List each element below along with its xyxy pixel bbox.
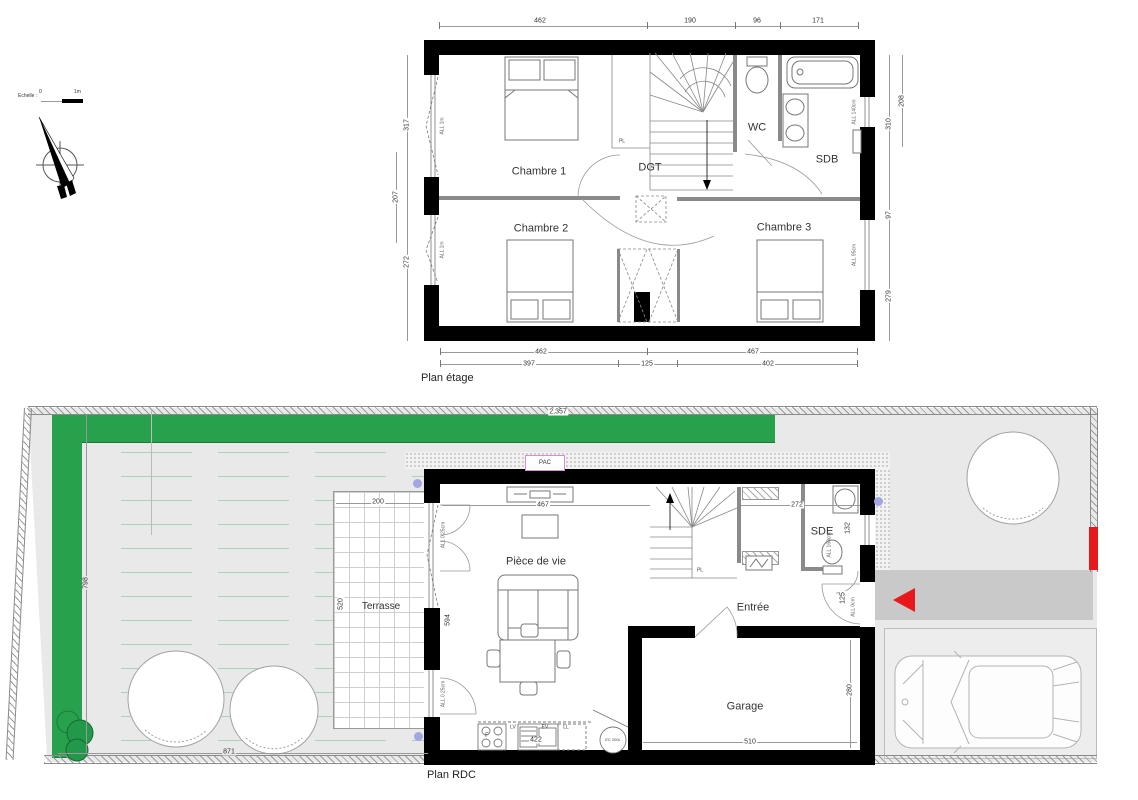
scale-one-meter: 1m — [74, 90, 81, 95]
dim-label: 279 — [886, 289, 893, 303]
wall-segment — [424, 177, 439, 215]
water-heater-label: EC 200L — [605, 738, 621, 742]
wall-segment — [860, 545, 875, 582]
dim-label: 125 — [640, 361, 654, 368]
window-label: ALL 0cm — [852, 597, 857, 617]
wall-segment — [860, 40, 875, 97]
dim-label: 96 — [752, 18, 762, 25]
marker-dot — [413, 479, 422, 488]
scale-bar-solid — [62, 99, 83, 103]
dim-label: 97 — [886, 210, 893, 220]
plan-rdc-title: Plan RDC — [427, 770, 476, 781]
dim-line — [440, 352, 857, 353]
bed-chambre2 — [507, 240, 573, 322]
dim-label: 871 — [222, 749, 236, 756]
wall-segment — [424, 608, 440, 670]
dim-line — [439, 26, 858, 27]
dim-label: 125 — [840, 591, 847, 605]
room-label-garage: Garage — [727, 702, 764, 713]
gravel-strip-top — [405, 452, 890, 469]
interior-wall — [439, 196, 620, 200]
wc-toilet — [746, 57, 768, 93]
garage-wall-top — [642, 626, 695, 638]
room-label-wc: WC — [748, 123, 766, 134]
garage-wall-left — [628, 626, 642, 765]
stair-wall — [737, 487, 741, 563]
hedge-left — [52, 415, 82, 758]
kitchen-label-ll: LL — [563, 726, 569, 731]
dim-label: 594 — [445, 613, 452, 627]
house-interior-rdc — [424, 469, 875, 765]
dim-label: 132 — [845, 521, 852, 535]
window-label: ALL 0.25cm — [442, 522, 447, 549]
room-label-chambre3: Chambre 3 — [757, 223, 811, 234]
wall-segment — [424, 750, 875, 765]
scale-label: Echelle : — [18, 94, 37, 99]
dim-label: 798 — [83, 576, 90, 590]
dim-line — [58, 753, 428, 754]
sde-wall — [801, 567, 836, 571]
room-label-living: Pièce de vie — [506, 557, 566, 568]
dim-label: 272 — [790, 502, 804, 509]
wall-segment — [424, 469, 440, 503]
north-compass-icon — [36, 117, 84, 199]
window-label: ALL 140cm — [853, 99, 858, 124]
closet-shelf — [742, 487, 779, 500]
wall-segment — [860, 469, 875, 515]
windows-etage — [426, 75, 869, 290]
dim-label: 171 — [811, 18, 825, 25]
bed-chambre1 — [505, 57, 578, 140]
sde-wall — [801, 484, 805, 571]
red-boundary-marker — [1089, 527, 1098, 570]
dim-label: 208 — [899, 94, 906, 108]
wall-segment — [424, 40, 439, 75]
heat-pump-box: PAC — [525, 455, 565, 471]
gravel-strip-right — [875, 469, 890, 570]
survey-line — [151, 410, 152, 535]
parking-space — [884, 628, 1097, 759]
window-label: ALL 95cm — [853, 244, 858, 266]
closet-shelf — [742, 551, 779, 565]
dim-label: 467 — [746, 349, 760, 356]
dim-label: 317 — [404, 118, 411, 132]
interior-wall — [677, 197, 860, 201]
sdb-bathtub — [787, 57, 858, 88]
dim-label: 520 — [338, 597, 345, 611]
dim-label: 310 — [886, 117, 893, 131]
floor-plan-sheet: Echelle : 0 1m PAC — [0, 0, 1138, 800]
wall-segment — [860, 290, 875, 341]
interior-wall — [778, 55, 782, 141]
window-label: ALL 1m — [441, 241, 446, 258]
dim-label: 422 — [529, 737, 543, 744]
dim-label: 207 — [393, 190, 400, 204]
interior-wall — [677, 249, 680, 322]
wall-segment — [424, 717, 440, 765]
kitchen-label-lv: LV — [510, 726, 516, 731]
entrance-arrow-icon — [893, 588, 915, 612]
kitchen-label-ev: EV — [542, 726, 549, 731]
scale-zero: 0 — [39, 90, 42, 95]
wall-segment — [424, 469, 875, 484]
plan-etage-title: Plan étage — [421, 373, 474, 384]
dim-label: 397 — [522, 361, 536, 368]
dim-label: 462 — [534, 349, 548, 356]
wall-segment — [424, 326, 875, 341]
dim-label: 402 — [761, 361, 775, 368]
dim-label: 510 — [743, 739, 757, 746]
window-label: ALL 160cm — [828, 532, 833, 557]
wall-segment — [860, 127, 875, 220]
dim-label: 2,357 — [548, 409, 568, 416]
interior-wall — [733, 55, 737, 152]
wall-segment — [424, 285, 439, 341]
room-label-sdb: SDB — [816, 155, 839, 166]
dim-label: 280 — [847, 683, 854, 697]
garage-wall-top — [737, 626, 860, 638]
room-label-entree: Entrée — [737, 603, 769, 614]
hedge-top — [58, 415, 775, 443]
sdb-double-basin — [783, 94, 861, 153]
closet-label-pl: PL — [619, 140, 625, 145]
dim-line — [407, 55, 408, 341]
marker-dot — [874, 497, 883, 506]
dim-label: 190 — [683, 18, 697, 25]
marker-dot — [414, 732, 423, 741]
scale-bar-line — [41, 101, 62, 102]
interior-wall — [617, 249, 620, 322]
bed-chambre3 — [757, 240, 823, 322]
room-label-dgt: DGT — [638, 163, 661, 174]
dim-label: 467 — [536, 502, 550, 509]
kitchen-label-f: F — [485, 733, 489, 739]
wall-segment — [424, 40, 875, 55]
dim-label: 200 — [371, 499, 385, 506]
closet-label-pl: PL — [697, 569, 703, 574]
window-label: ALL 1m — [441, 117, 446, 134]
dim-label: 462 — [533, 18, 547, 25]
wall-segment — [860, 627, 875, 765]
window-label: ALL 0.25cm — [442, 681, 447, 708]
room-label-chambre1: Chambre 1 — [512, 167, 566, 178]
boundary-left — [6, 408, 32, 760]
room-label-terrasse: Terrasse — [362, 602, 400, 612]
stairs-etage — [612, 53, 733, 190]
chimney-block — [634, 292, 650, 322]
room-label-chambre2: Chambre 2 — [514, 224, 568, 235]
dim-label: 272 — [404, 255, 411, 269]
